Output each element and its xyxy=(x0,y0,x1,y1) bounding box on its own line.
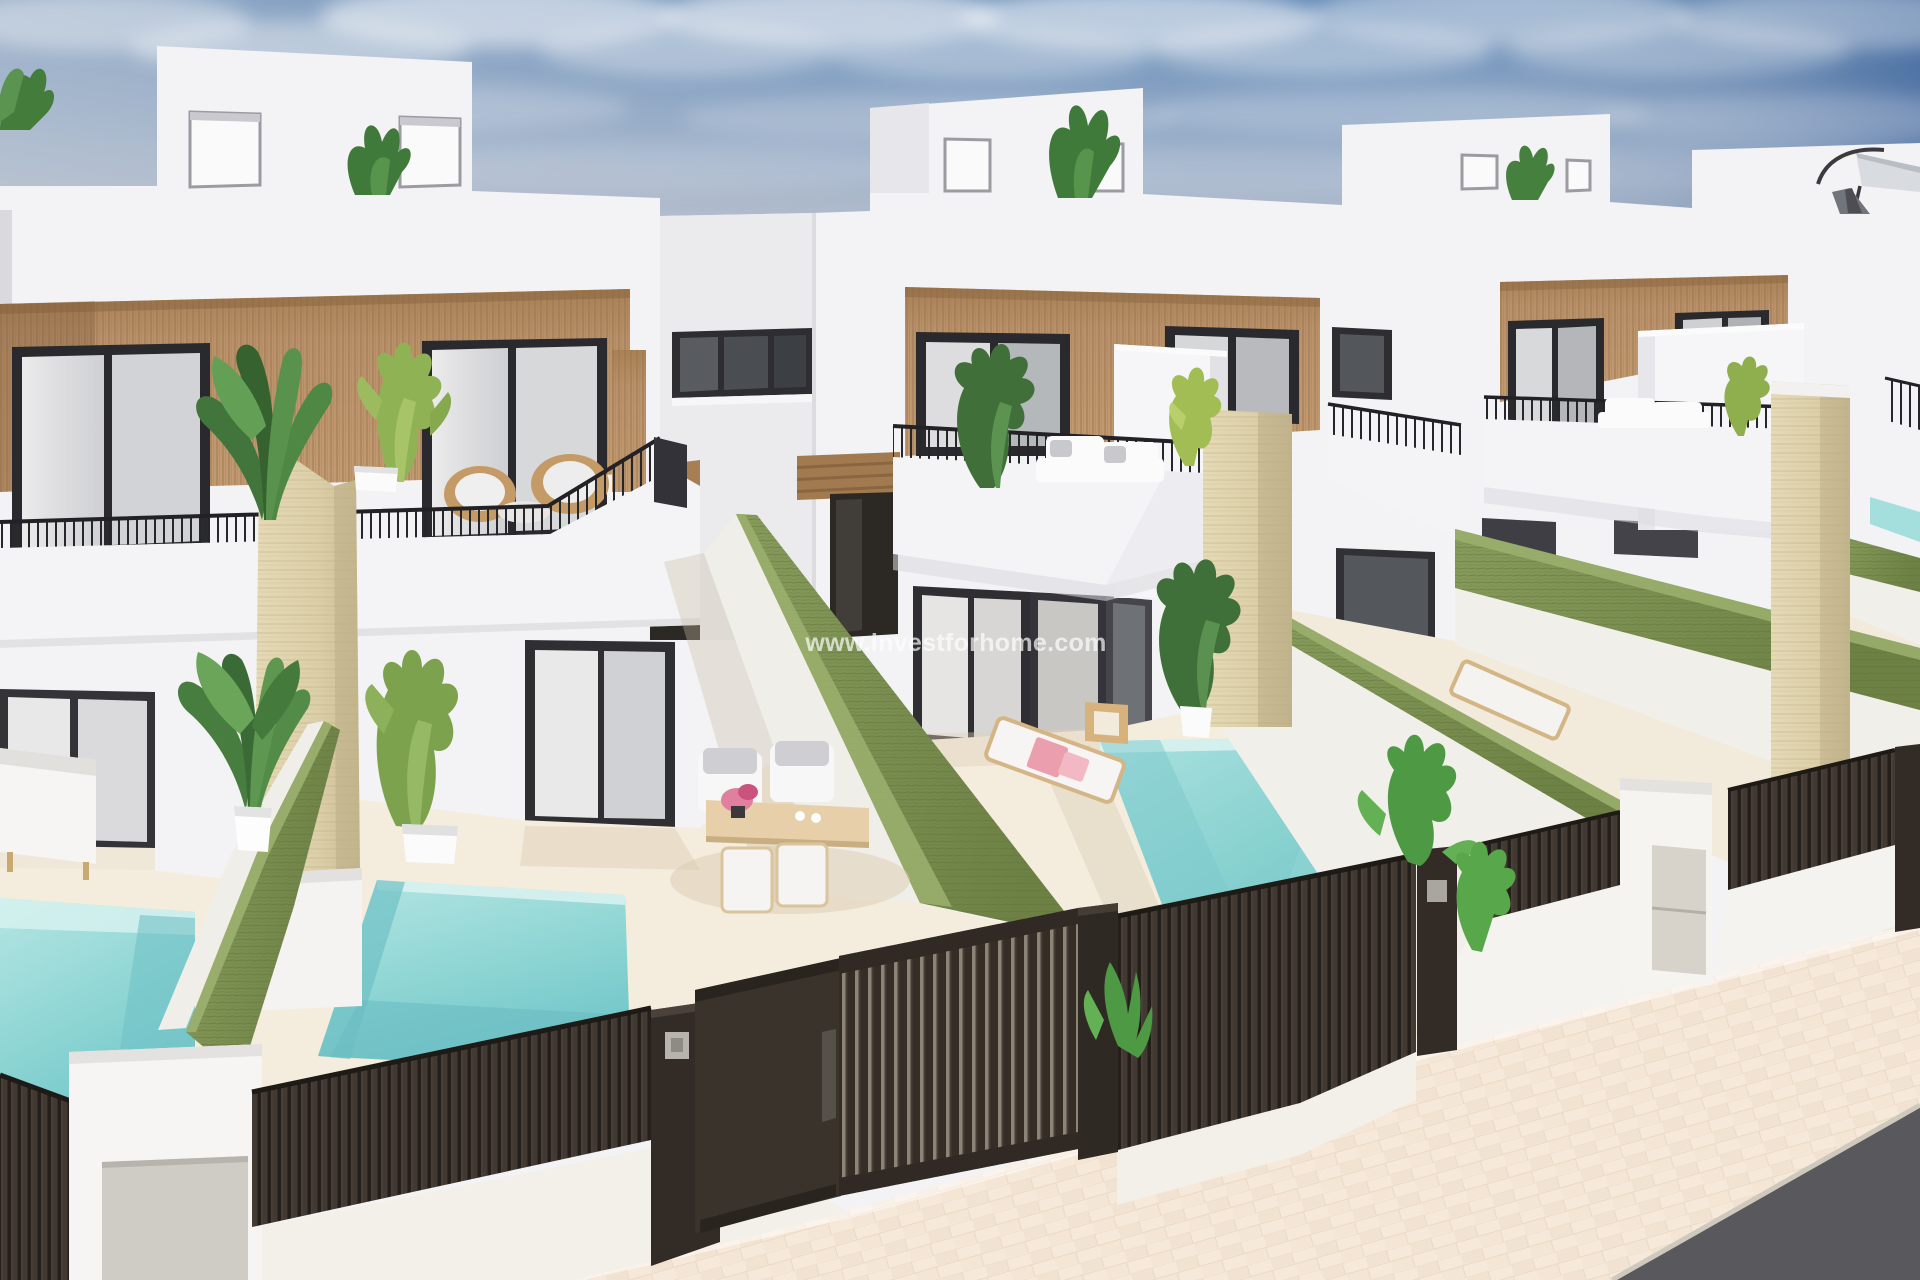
svg-text:www.investforhome.com: www.investforhome.com xyxy=(804,629,1106,657)
